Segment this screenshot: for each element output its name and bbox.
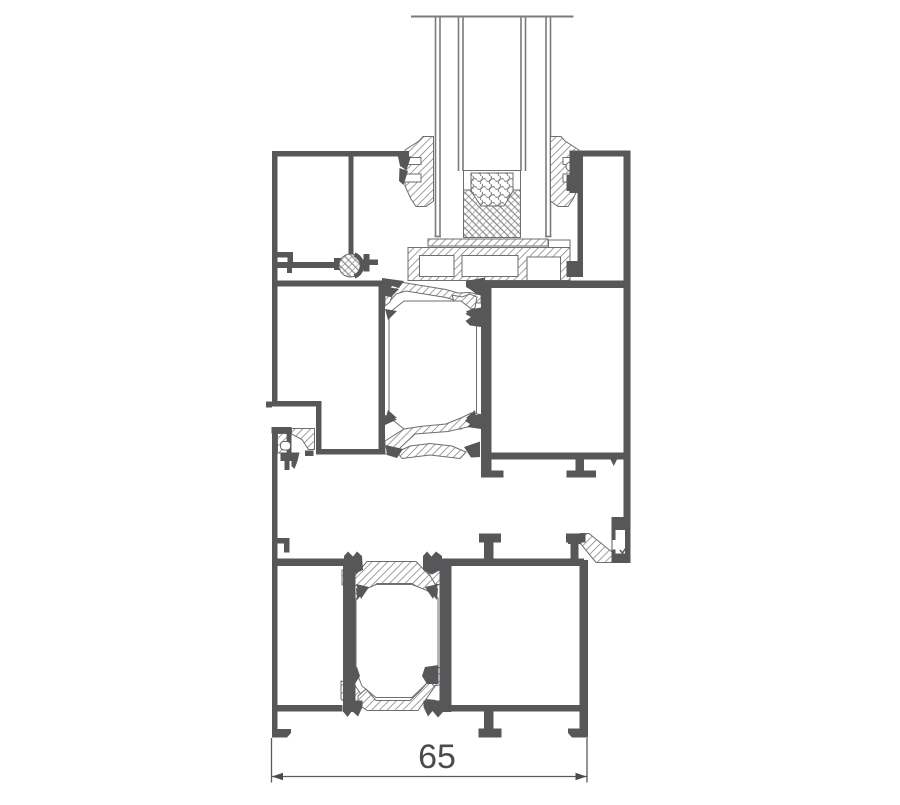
svg-text:65: 65 [418, 738, 456, 776]
